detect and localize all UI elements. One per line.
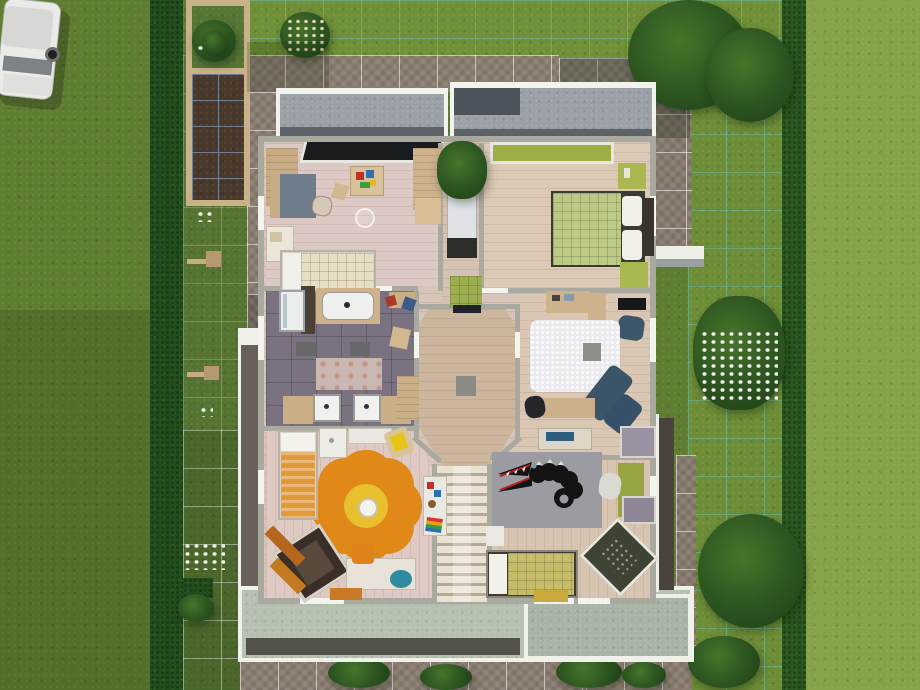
bush-bottom-1[interactable]	[328, 658, 390, 688]
nightstand-1-item	[624, 168, 630, 178]
bath-cabinet[interactable]	[397, 376, 419, 420]
kid-bed-left-blanket	[281, 452, 315, 518]
bush-bottom-4[interactable]	[622, 662, 666, 688]
master-dresser-dark[interactable]	[642, 198, 654, 256]
planter-base-dark	[447, 238, 477, 258]
book-row-blue	[546, 432, 574, 441]
roof-bottom-dark-band	[246, 638, 520, 655]
bush-bottom-2[interactable]	[420, 664, 472, 690]
flower-rug[interactable]	[316, 460, 416, 552]
door-frame-bottom[interactable]	[578, 598, 610, 604]
toy-blue[interactable]	[366, 170, 374, 178]
orange-chair[interactable]	[352, 544, 374, 564]
nursery-bed-blanket	[301, 253, 373, 289]
shelf-teddy	[428, 500, 436, 508]
toy-green[interactable]	[360, 182, 370, 188]
dormer-left-roof-light	[280, 94, 444, 127]
window-left-1	[258, 196, 264, 230]
living-desk[interactable]	[543, 398, 595, 418]
bush-bottom-5[interactable]	[688, 636, 760, 688]
tree-canopy-top-2[interactable]	[706, 28, 794, 122]
master-pillow-1	[622, 196, 642, 226]
croc-rug[interactable]	[492, 452, 602, 528]
toy-red[interactable]	[356, 172, 364, 180]
grass-shade-left	[0, 310, 150, 690]
dormer-right-roof-corner	[454, 88, 520, 115]
nursery-desk-side	[270, 174, 280, 218]
sideboard-item-1	[552, 295, 560, 301]
xylophone-toy[interactable]	[425, 517, 443, 533]
tree-canopy-bottom[interactable]	[698, 514, 804, 628]
wildflowers-1	[196, 210, 212, 222]
window-right-2	[650, 318, 656, 362]
rug-center-square	[583, 343, 601, 361]
tub-faucet	[344, 302, 350, 308]
sea-toy[interactable]	[390, 570, 412, 588]
window-left-2	[258, 316, 264, 360]
bird-feeder-2-box[interactable]	[204, 366, 219, 380]
window-left-3	[258, 470, 264, 504]
green-bench[interactable]	[450, 276, 482, 308]
bird-feeder-1-box[interactable]	[206, 251, 221, 267]
shelf-unit-2[interactable]	[622, 496, 656, 524]
changing-pad	[270, 232, 282, 242]
white-flower-dots	[700, 330, 778, 402]
dresser-knob	[329, 438, 334, 443]
wildflowers-3	[183, 542, 225, 570]
orange-mat	[330, 588, 362, 600]
shelf-unit-1[interactable]	[620, 426, 656, 458]
grass-light-right	[806, 0, 920, 690]
garden-dirt-grid	[192, 74, 244, 200]
sink-right-drain	[364, 404, 369, 409]
ceiling-lamp	[355, 208, 375, 228]
sink-left-drain	[324, 404, 329, 409]
wall-tv[interactable]	[618, 298, 646, 310]
bath-mat-1	[296, 342, 316, 356]
door-frame-hall-left[interactable]	[414, 332, 419, 358]
stairs-runner	[453, 466, 471, 602]
nursery-bed-pillow	[283, 253, 301, 289]
garden-flower	[196, 44, 206, 53]
nursery-divider-box[interactable]	[415, 198, 441, 224]
bath-mat-2	[350, 342, 370, 356]
nightstand-1[interactable]	[618, 163, 646, 189]
bay-roof-edge-right	[650, 259, 704, 267]
right-dark-wall-strip	[658, 418, 674, 590]
shower-door-line	[283, 294, 287, 328]
van-roof-window	[1, 6, 54, 51]
toy-yellow[interactable]	[370, 180, 376, 186]
crocodile-art	[492, 452, 602, 528]
white-dresser[interactable]	[319, 428, 347, 458]
hall-floor-square	[456, 376, 476, 396]
sideboard-item-2	[564, 294, 574, 301]
master-bed-blanket	[553, 193, 621, 265]
kid-bed-right-pillow	[489, 554, 507, 594]
kid-bed-right-blanket	[508, 553, 574, 595]
wall-hall-right	[515, 304, 520, 438]
bath-rug[interactable]	[316, 358, 382, 390]
gold-rug[interactable]	[534, 590, 568, 602]
kid-bed-left-pillow	[281, 433, 315, 451]
nightstand-kid[interactable]	[486, 526, 504, 546]
nightstand-2[interactable]	[620, 262, 648, 288]
floor-lamp[interactable]	[358, 498, 378, 518]
van-wheel	[45, 47, 60, 62]
hedge-left	[150, 0, 183, 690]
blossom-shadow	[247, 42, 329, 92]
master-pillow-2	[622, 230, 642, 260]
bush-bottom-left[interactable]	[178, 594, 214, 622]
shelf-toy-red	[427, 482, 434, 489]
shelf-toy-blue	[434, 490, 441, 497]
door-frame-hall-right[interactable]	[515, 332, 520, 358]
potted-plant[interactable]	[437, 141, 487, 199]
game-viewport[interactable]	[0, 0, 920, 690]
armchair-blue[interactable]	[616, 314, 645, 341]
hall-door-dark[interactable]	[453, 305, 481, 313]
door-frame-master[interactable]	[482, 288, 508, 293]
counter-left	[283, 396, 313, 424]
skylight-olive	[490, 142, 614, 164]
wildflowers-2	[199, 406, 213, 417]
